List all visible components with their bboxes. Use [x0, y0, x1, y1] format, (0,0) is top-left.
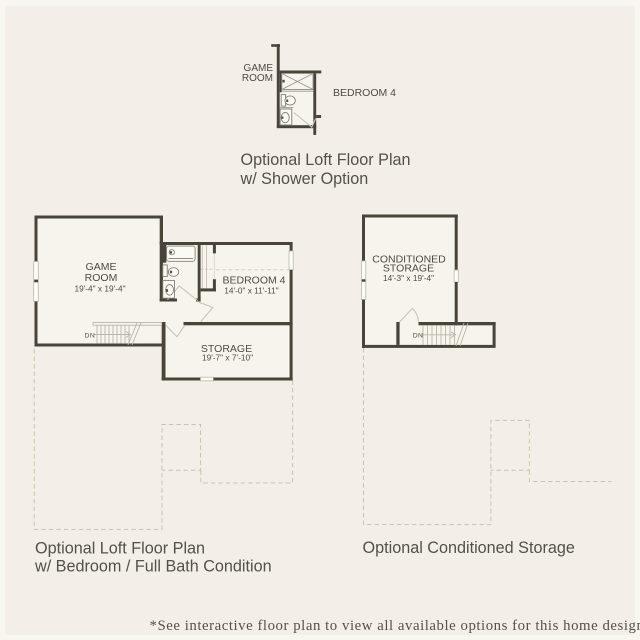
svg-text:DN: DN — [85, 333, 96, 340]
svg-text:14'-3" x 19'-4": 14'-3" x 19'-4" — [383, 273, 434, 283]
svg-text:Optional Conditioned Storage: Optional Conditioned Storage — [363, 539, 575, 557]
svg-text:w/ Bedroom / Full Bath Conditi: w/ Bedroom / Full Bath Condition — [34, 557, 272, 575]
svg-text:19'-7" x 7'-10": 19'-7" x 7'-10" — [202, 353, 253, 363]
svg-text:BEDROOM 4: BEDROOM 4 — [333, 87, 396, 99]
svg-text:DN: DN — [413, 332, 424, 339]
svg-text:19'-4" x 19'-4": 19'-4" x 19'-4" — [74, 284, 125, 294]
svg-text:14'-0" x 11'-11": 14'-0" x 11'-11" — [224, 286, 278, 296]
svg-text:Optional Loft Floor Plan: Optional Loft Floor Plan — [241, 151, 411, 169]
svg-text:BEDROOM 4: BEDROOM 4 — [222, 274, 285, 286]
svg-text:ROOM: ROOM — [85, 272, 118, 284]
svg-text:Optional Loft Floor Plan: Optional Loft Floor Plan — [35, 539, 205, 557]
svg-text:ROOM: ROOM — [242, 73, 273, 84]
svg-text:w/ Shower Option: w/ Shower Option — [240, 170, 369, 188]
svg-text:*See interactive floor plan to: *See interactive floor plan to view all … — [150, 618, 640, 634]
